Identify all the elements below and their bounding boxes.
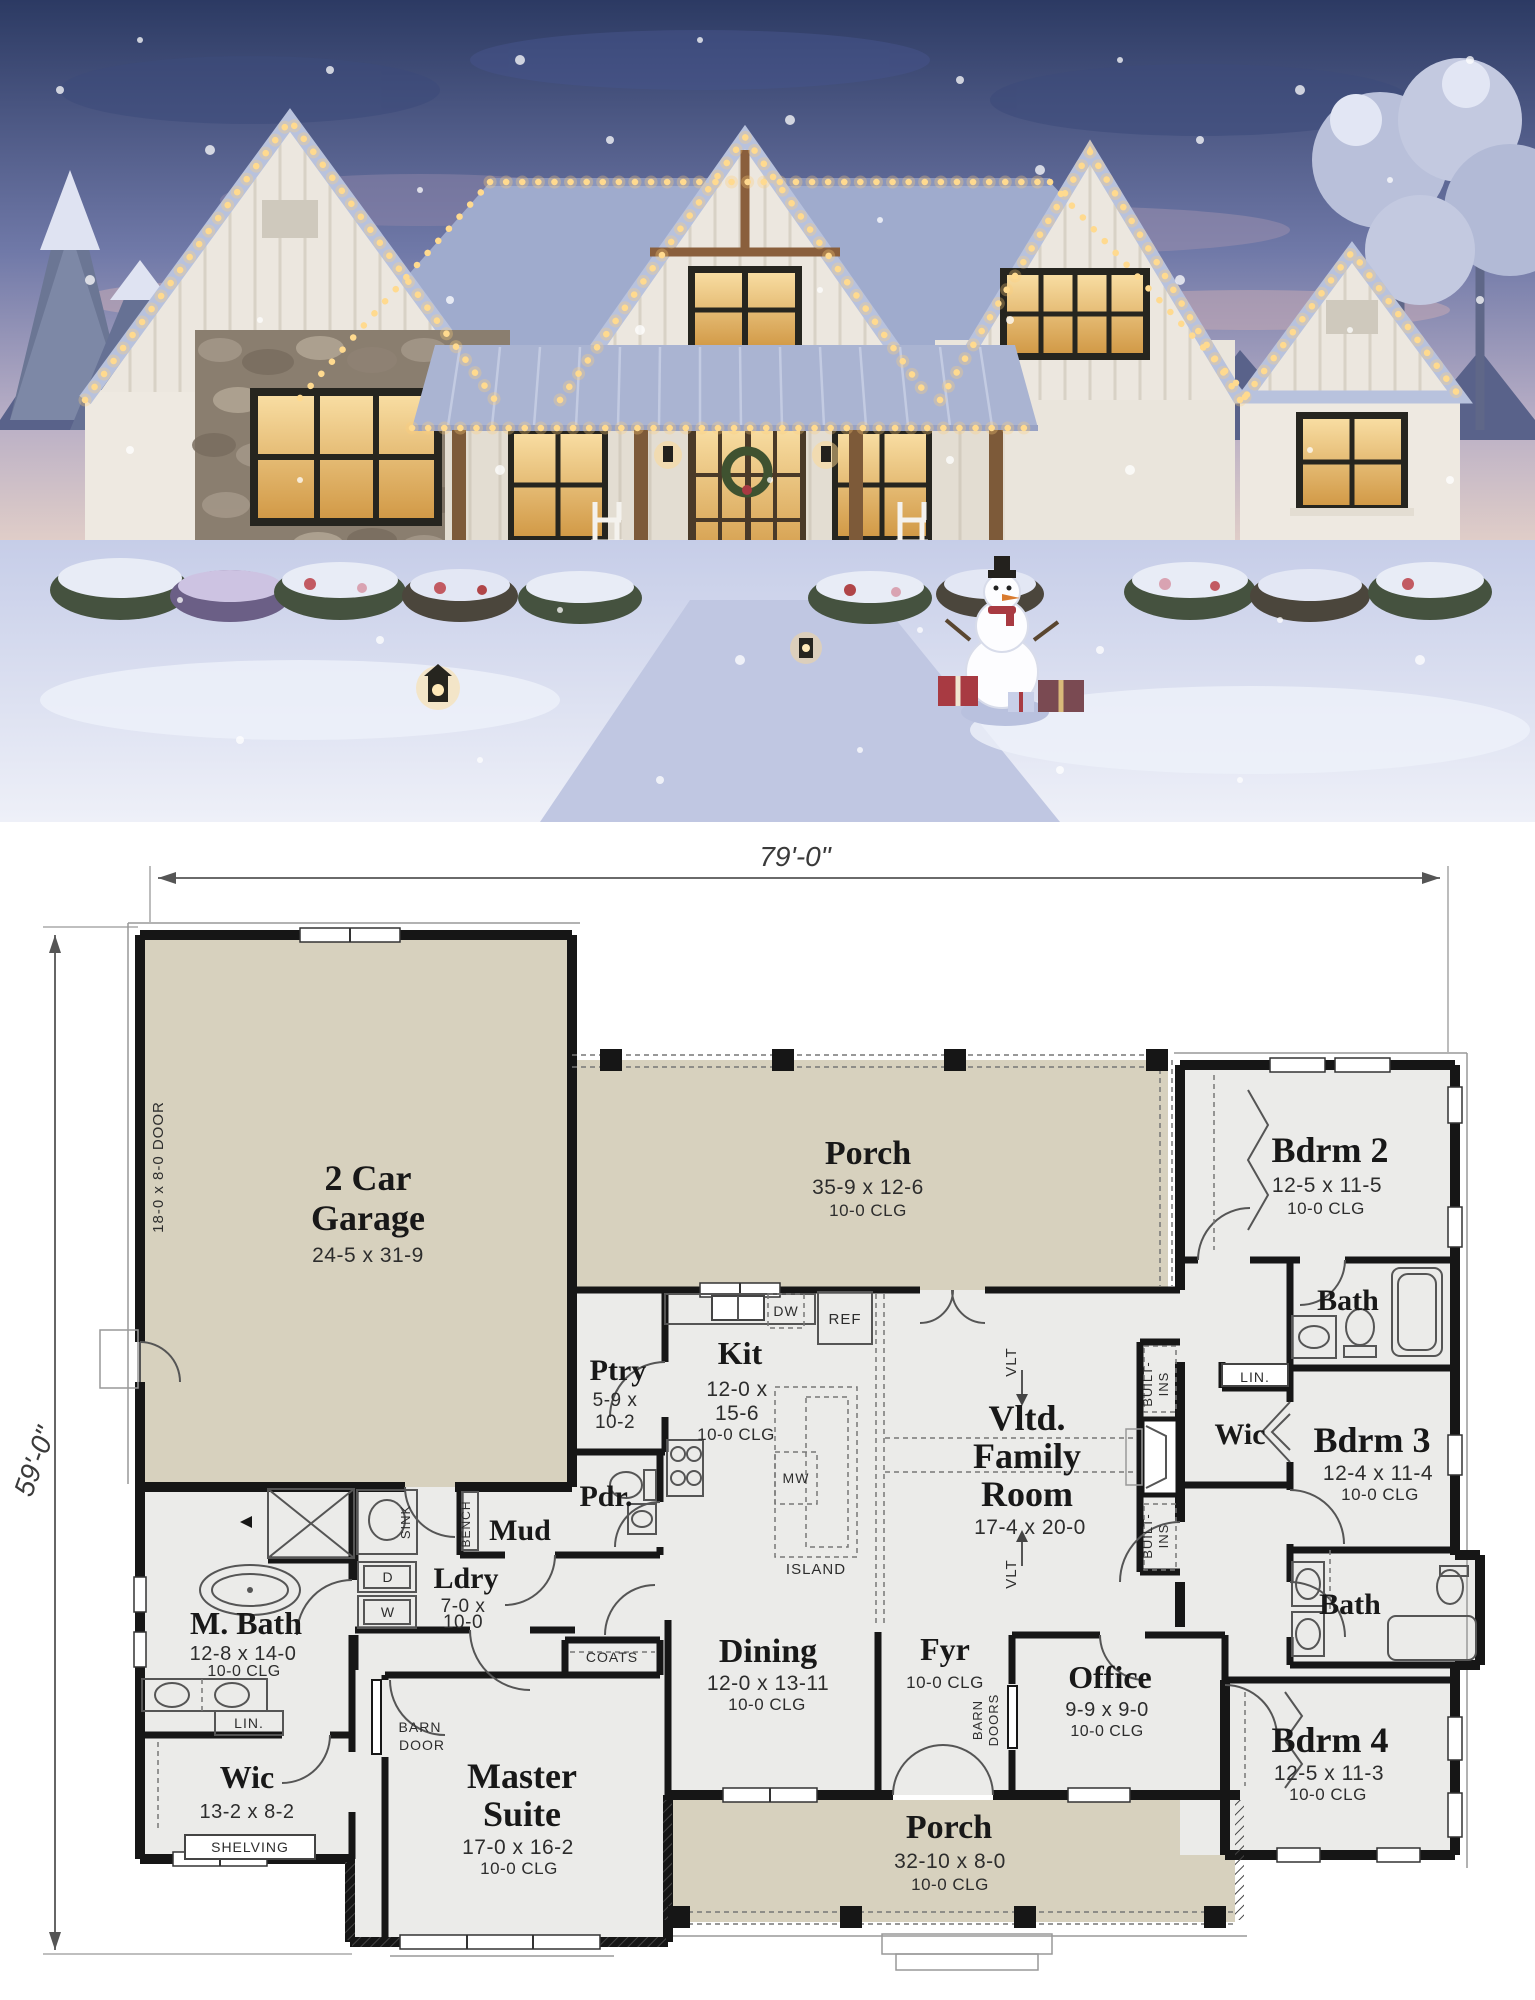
family-name-1: Vltd. bbox=[988, 1398, 1065, 1438]
garage-name-1: 2 Car bbox=[325, 1158, 412, 1198]
lin-mbath-label: LIN. bbox=[234, 1715, 264, 1731]
bdrm3-clg: 10-0 CLG bbox=[1341, 1485, 1419, 1504]
porch-top-floor bbox=[572, 1060, 1168, 1290]
dw-label: DW bbox=[773, 1303, 798, 1319]
porch-bottom-size: 32-10 x 8-0 bbox=[894, 1850, 1006, 1873]
mbath-clg: 10-0 CLG bbox=[207, 1663, 280, 1680]
pdr-name: Pdr. bbox=[579, 1480, 632, 1513]
dryer-label: D bbox=[382, 1569, 393, 1585]
house-plan-pin: 79'-0" 59'-0" bbox=[0, 0, 1535, 2000]
office-name: Office bbox=[1068, 1659, 1152, 1695]
bath2-name: Bath bbox=[1317, 1284, 1379, 1317]
master-clg: 10-0 CLG bbox=[480, 1859, 558, 1878]
wic-left-name: Wic bbox=[220, 1759, 275, 1795]
master-size: 17-0 x 16-2 bbox=[462, 1836, 574, 1859]
porch-top-name: Porch bbox=[825, 1135, 911, 1172]
floor-plan-svg: 79'-0" 59'-0" bbox=[0, 822, 1535, 2000]
dining-clg: 10-0 CLG bbox=[728, 1695, 806, 1714]
bath3-name: Bath bbox=[1319, 1588, 1381, 1621]
built-ins-bottom-2: INS bbox=[1156, 1524, 1171, 1549]
plan-width-dim: 79'-0" bbox=[759, 841, 831, 872]
porch-bottom-clg: 10-0 CLG bbox=[911, 1875, 989, 1894]
barn-door-master bbox=[372, 1680, 381, 1754]
ldry-name: Ldry bbox=[433, 1562, 498, 1595]
porch-bottom-name: Porch bbox=[906, 1809, 992, 1846]
built-ins-bottom-1: BUILT- bbox=[1140, 1513, 1155, 1559]
gable-window bbox=[1000, 268, 1150, 360]
wic-left-size: 13-2 x 8-2 bbox=[199, 1801, 294, 1823]
bdrm2-size: 12-5 x 11-5 bbox=[1272, 1174, 1382, 1197]
kit-size-1: 12-0 x bbox=[706, 1378, 767, 1401]
mbath-size: 12-8 x 14-0 bbox=[190, 1643, 297, 1665]
bdrm3-size: 12-4 x 11-4 bbox=[1323, 1462, 1433, 1485]
bdrm2-clg: 10-0 CLG bbox=[1287, 1199, 1365, 1218]
ptry-size-2: 10-2 bbox=[595, 1412, 635, 1433]
ref-label: REF bbox=[829, 1311, 862, 1328]
shelving-label: SHELVING bbox=[211, 1839, 289, 1855]
vlt-bottom: VLT bbox=[1003, 1559, 1020, 1588]
lin-right-label: LIN. bbox=[1240, 1369, 1270, 1385]
wic-right-name: Wic bbox=[1214, 1418, 1265, 1451]
house-photo-svg bbox=[0, 0, 1535, 822]
bdrm3-name: Bdrm 3 bbox=[1314, 1420, 1431, 1460]
family-size: 17-4 x 20-0 bbox=[974, 1516, 1086, 1539]
fyr-name: Fyr bbox=[920, 1631, 970, 1667]
porch-window-right bbox=[832, 428, 932, 542]
bdrm4-clg: 10-0 CLG bbox=[1289, 1785, 1367, 1804]
bdrm4-name: Bdrm 4 bbox=[1272, 1720, 1389, 1760]
family-name-3: Room bbox=[981, 1474, 1073, 1514]
porch-top-size: 35-9 x 12-6 bbox=[812, 1176, 924, 1199]
fyr-clg: 10-0 CLG bbox=[906, 1673, 984, 1692]
garage-door-note: 18-0 x 8-0 DOOR bbox=[150, 1101, 167, 1233]
ptry-size-1: 5-9 x bbox=[593, 1390, 638, 1411]
dining-size: 12-0 x 13-11 bbox=[707, 1672, 829, 1695]
mw-label: MW bbox=[783, 1470, 810, 1486]
porch-top-clg: 10-0 CLG bbox=[829, 1201, 907, 1220]
coats-label: COATS bbox=[586, 1649, 638, 1665]
ptry-name: Ptry bbox=[590, 1354, 647, 1387]
vlt-top: VLT bbox=[1003, 1347, 1020, 1376]
garage-name-2: Garage bbox=[311, 1198, 425, 1238]
barn-doors-office bbox=[1008, 1686, 1017, 1748]
office-clg: 10-0 CLG bbox=[1070, 1723, 1143, 1740]
ldry-size-2: 10-0 bbox=[443, 1612, 483, 1633]
bdrm2-name: Bdrm 2 bbox=[1272, 1130, 1389, 1170]
barn-doors-2: DOORS bbox=[986, 1694, 1001, 1747]
kit-name: Kit bbox=[718, 1335, 763, 1371]
bench-label: BENCH bbox=[459, 1500, 473, 1547]
kit-size-2: 15-6 bbox=[715, 1402, 759, 1425]
kit-clg: 10-0 CLG bbox=[697, 1425, 775, 1444]
plan-height-dim: 59'-0" bbox=[8, 1422, 62, 1501]
bdrm4-size: 12-5 x 11-3 bbox=[1274, 1762, 1384, 1785]
built-ins-top-1: BUILT- bbox=[1140, 1361, 1155, 1407]
stone-window bbox=[250, 388, 442, 526]
garage-vent bbox=[262, 200, 318, 238]
mud-name: Mud bbox=[489, 1514, 551, 1547]
master-name-2: Suite bbox=[483, 1794, 561, 1834]
floor-plan: 79'-0" 59'-0" bbox=[0, 822, 1535, 2000]
garage-size: 24-5 x 31-9 bbox=[312, 1244, 424, 1267]
house-photo bbox=[0, 0, 1535, 822]
office-size: 9-9 x 9-0 bbox=[1065, 1699, 1148, 1721]
family-name-2: Family bbox=[973, 1436, 1081, 1476]
sink-label: SINK bbox=[398, 1505, 413, 1539]
right-window bbox=[1290, 412, 1414, 516]
barn-doors-1: BARN bbox=[970, 1700, 985, 1740]
built-ins-top-2: INS bbox=[1156, 1372, 1171, 1397]
master-name-1: Master bbox=[467, 1756, 577, 1796]
mbath-name: M. Bath bbox=[190, 1605, 302, 1641]
island-label: ISLAND bbox=[786, 1561, 846, 1578]
dining-name: Dining bbox=[719, 1633, 817, 1670]
washer-label: W bbox=[381, 1604, 395, 1620]
barn-door-2: DOOR bbox=[399, 1737, 445, 1753]
barn-door-1: BARN bbox=[399, 1719, 442, 1735]
attic-window bbox=[688, 266, 802, 354]
